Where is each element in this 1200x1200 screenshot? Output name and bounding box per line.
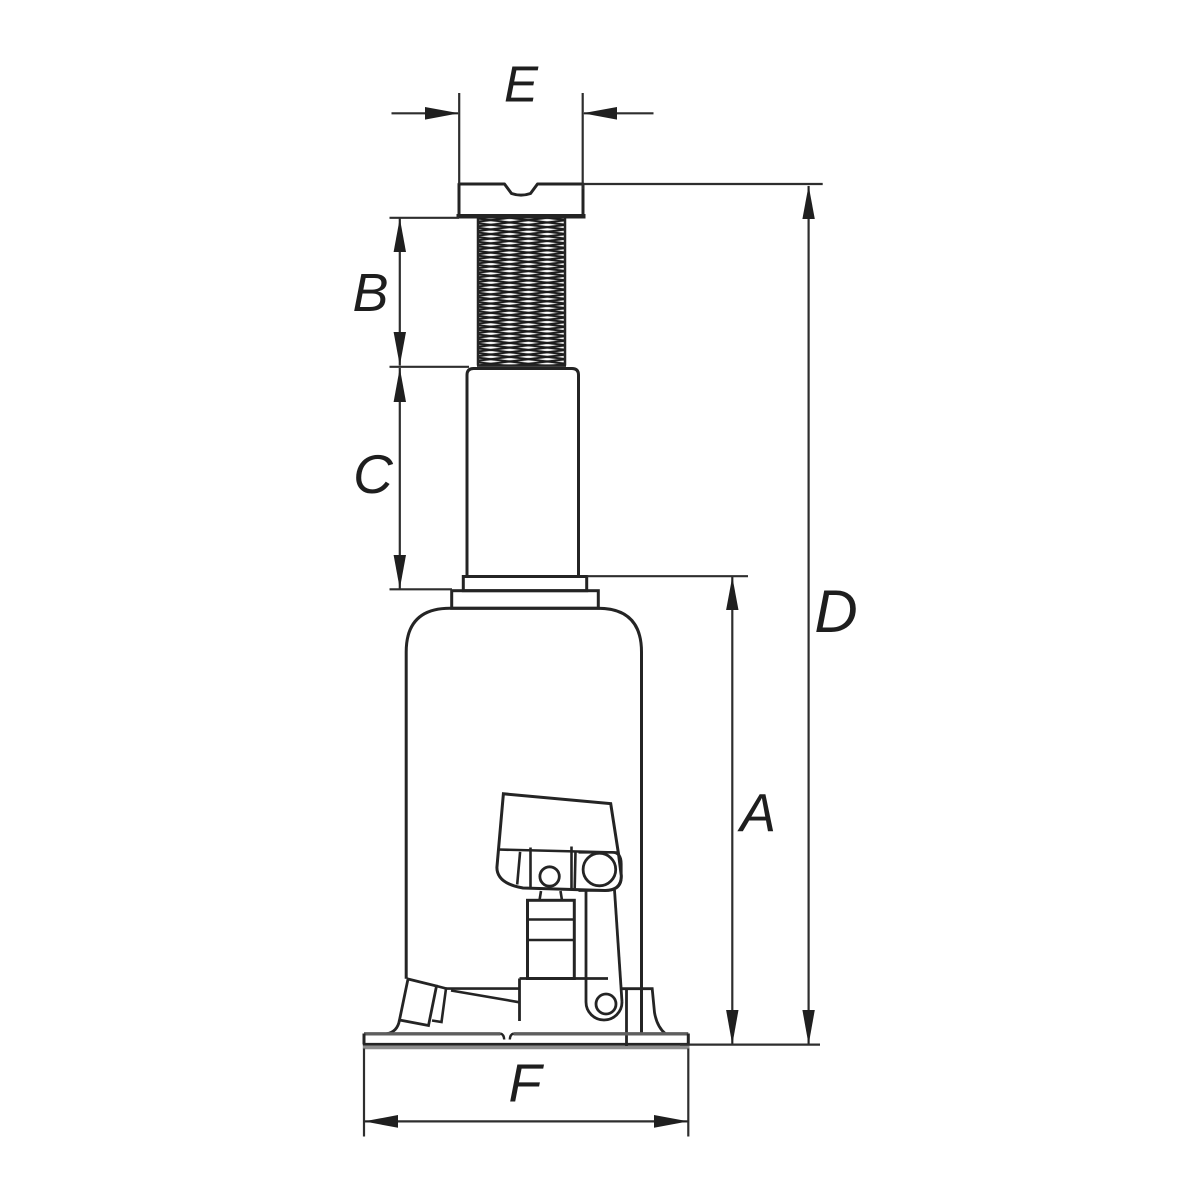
svg-text:E: E [504,56,539,113]
svg-text:D: D [814,578,857,645]
svg-text:B: B [352,263,388,323]
svg-text:F: F [509,1054,545,1114]
svg-text:C: C [353,443,394,505]
svg-text:A: A [737,784,776,844]
